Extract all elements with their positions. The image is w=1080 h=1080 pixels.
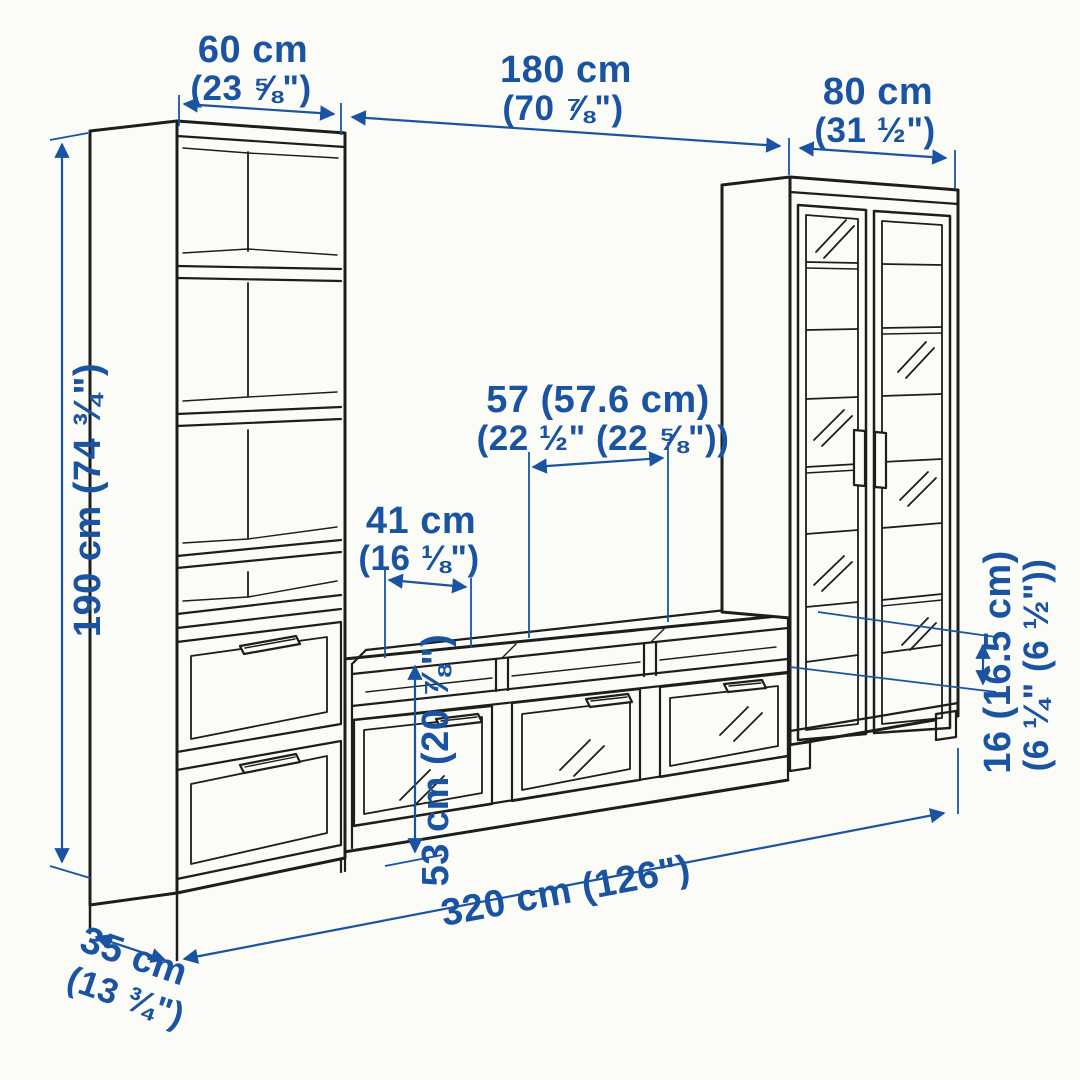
shelf-spacing-cm-label: 16 (16.5 cm) [977, 550, 1019, 774]
bookcase-width-cm-label: 60 cm [198, 29, 308, 71]
compartment-width-cm-label: 41 cm [366, 500, 476, 542]
cabinet-door-left-handle [854, 430, 865, 486]
cabinet-width-cm-label: 80 cm [823, 71, 933, 113]
tv-space-width-cm-label: 57 (57.6 cm) [486, 379, 710, 421]
cabinet-width-inch-label: (31 ½") [814, 111, 935, 150]
cabinet-door-right-handle [875, 432, 886, 488]
compartment-width-inch-label: (16 ⅛") [358, 539, 479, 578]
bench-height-label: 53 cm (20 ⅞") [415, 634, 457, 887]
furniture-diagram-canvas: 60 cm (23 ⅝") 180 cm (70 ⅞") 80 cm (31 ½… [0, 0, 1080, 1080]
bookcase-width-inch-label: (23 ⅝") [190, 69, 311, 108]
bookcase-drawing [90, 121, 345, 960]
tv-space-width-inch-label: (22 ½" (22 ⅝")) [477, 419, 730, 458]
bench-width-inch-label: (70 ⅞") [502, 89, 623, 128]
total-height-label: 190 cm (74 ¾") [67, 363, 109, 637]
shelf-spacing-inch-label: (6 ¼" (6 ½")) [1017, 559, 1056, 772]
bench-width-cm-label: 180 cm [500, 49, 632, 91]
dimension-diagram: 60 cm (23 ⅝") 180 cm (70 ⅞") 80 cm (31 ½… [0, 0, 1080, 1080]
